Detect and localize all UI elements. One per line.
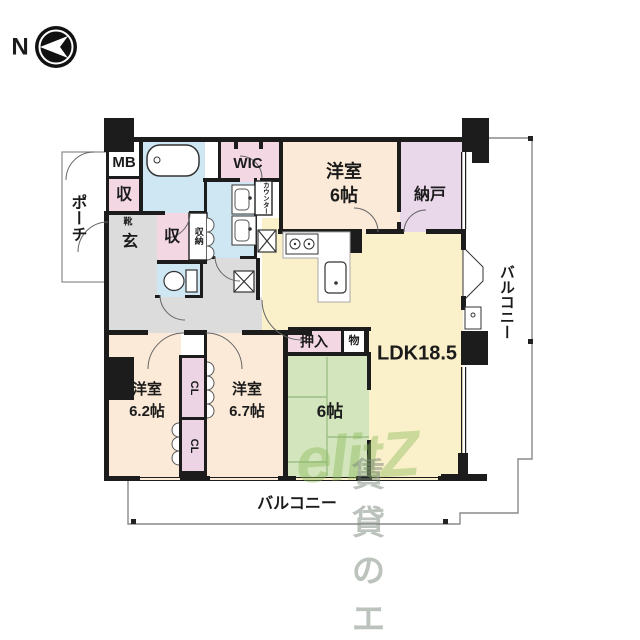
- room-label-entrance: 玄: [122, 235, 138, 252]
- room-label-western3-size: 6.7帖: [229, 404, 265, 420]
- room-label-western2-name: 洋室: [132, 382, 162, 398]
- bathtub-icon: [147, 145, 199, 176]
- north-label: N: [11, 34, 28, 59]
- room-label-cl-top: CL: [187, 381, 199, 396]
- room-label-western1-name: 洋室: [326, 163, 362, 182]
- room-label-tatami: 6帖: [317, 403, 343, 421]
- room-label-porch: ポーチ: [68, 194, 85, 242]
- room-label-shoes: 靴: [123, 217, 132, 226]
- room-label-storage-small: 収納: [193, 227, 202, 245]
- room-label-balcony-right: バルコニー: [498, 265, 514, 340]
- room-label-oshiire: 押入: [300, 335, 328, 350]
- room-label-storage-top: 収: [116, 188, 132, 205]
- room-label-cl-bottom: CL: [187, 439, 199, 454]
- room-label-western1-size: 6帖: [330, 187, 358, 206]
- room-label-ldk: LDK18.5: [377, 344, 457, 365]
- room-label-storage-mid: 収: [164, 230, 180, 247]
- room-label-mb: MB: [112, 155, 135, 171]
- room-label-nando: 納戸: [414, 188, 446, 205]
- room-label-western3-name: 洋室: [232, 382, 262, 398]
- room-label-wic: WIC: [233, 156, 262, 172]
- north-arrow-icon: [35, 26, 77, 68]
- slop-sink-icon: [465, 307, 481, 329]
- stove-icon: [286, 234, 318, 254]
- toilet-icon: [164, 270, 197, 292]
- room-label-balcony-bottom: バルコニー: [257, 497, 337, 514]
- room-label-counter: カウンター: [261, 182, 268, 215]
- floorplan-page: N MB ポーチ 収 靴 玄 収 収納 WIC カウンター 洋室 6帖 納戸 バ…: [0, 0, 640, 640]
- kitchen-sink-icon: [325, 262, 346, 293]
- room-label-western2-size: 6.2帖: [129, 404, 165, 420]
- floorplan-drawing: [0, 0, 640, 640]
- room-label-mono: 物: [349, 336, 360, 348]
